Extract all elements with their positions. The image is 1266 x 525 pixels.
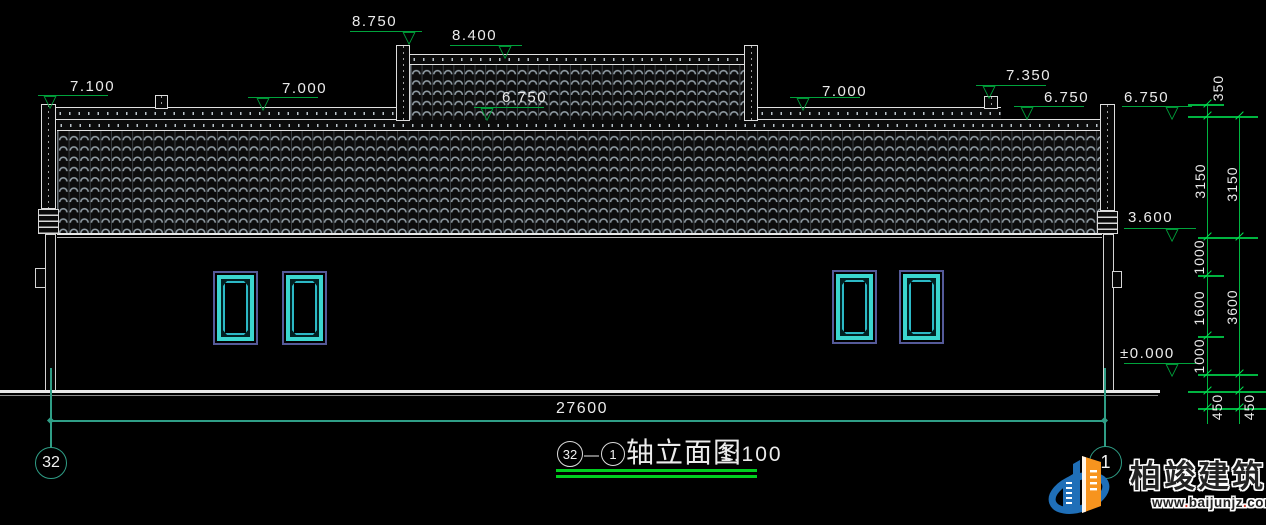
window-3 [832,270,877,344]
logo-url-text: www.baijunjz.com [1152,495,1266,510]
dim-end-marker [47,417,54,424]
left-column-bracket [35,268,46,288]
dim-value: 1000 [1190,326,1208,386]
eave-line [57,233,1102,235]
title-axis-circle-32: 32 [557,441,583,467]
left-corbel [38,209,59,234]
axis-extension-right [1104,368,1106,447]
dim-value: 450 [1208,377,1226,437]
dim-value: 3600 [1223,277,1241,337]
center-right-pillar [744,45,758,121]
center-left-pillar [396,45,410,121]
logo-icon [1046,444,1132,520]
logo-url-tld: com [1247,495,1266,510]
title-underline-bottom [556,475,757,478]
left-wing-coping-band [56,107,398,120]
level-triangle-icon: ▽ [495,45,515,59]
window-pane [223,281,248,335]
raised-roof-tiles [410,64,745,120]
window-frame [217,275,254,341]
elevation-drawing-canvas: 8.750 ▽ 8.400 ▽ 7.100 ▽ 7.000 ▽ 6.750 ▽ … [0,0,1266,525]
axis-extension-left [50,368,52,448]
level-triangle-icon: ▽ [40,95,60,109]
title-axis-circle-1: 1 [601,442,625,466]
eave-line-thin [57,237,1102,238]
level-triangle-icon: ▽ [399,31,419,45]
ground-line-thin [0,395,1158,396]
level-line [1124,228,1196,229]
axis-bubble-32: 32 [35,447,67,479]
right-corbel [1097,211,1118,234]
level-label: 3.600 [1128,210,1173,225]
drawing-scale: 1:100 [720,447,783,462]
window-4 [899,270,944,344]
left-parapet-wall [41,104,56,209]
right-column-bracket [1112,271,1122,288]
level-triangle-icon: ▽ [979,85,999,99]
overall-dim-line [51,420,1105,422]
level-label: 8.750 [352,14,397,29]
main-roof-tiles [57,130,1102,233]
dim-value: 3150 [1191,151,1209,211]
window-frame [836,274,873,340]
window-1 [213,271,258,345]
level-label: 6.750 [1124,90,1169,105]
window-pane [292,281,317,335]
level-label: 6.750 [502,90,547,105]
right-parapet-wall [1100,104,1115,211]
overall-width-value: 27600 [556,401,608,416]
logo-url-domain: baijunjz [1189,495,1243,510]
level-triangle-icon: ▽ [1162,106,1182,120]
window-frame [286,275,323,341]
main-roof-ridge-band [57,119,1102,131]
level-triangle-icon: ▽ [1162,363,1182,377]
level-label: 7.100 [70,79,115,94]
level-triangle-icon: ▽ [1017,106,1037,120]
left-wing-post [155,95,168,109]
level-label: 7.000 [282,81,327,96]
window-frame [903,274,940,340]
ground-line [0,390,1160,393]
level-triangle-icon: ▽ [477,107,497,121]
dim-end-marker [1101,417,1108,424]
logo-brand-text: 柏竣建筑 [1130,460,1266,494]
axis-bubble-32-label: 32 [42,454,60,472]
title-axis-1: 1 [609,447,616,462]
level-triangle-icon: ▽ [793,97,813,111]
level-label: 6.750 [1044,90,1089,105]
title-dash: — [584,448,601,463]
level-triangle-icon: ▽ [253,97,273,111]
dim-value: 350 [1209,58,1227,118]
level-label: 7.350 [1006,68,1051,83]
level-line [1124,363,1196,364]
dim-value: 3150 [1223,154,1241,214]
logo-url-www: www [1152,495,1185,510]
window-pane [909,280,934,334]
raised-roof-ridge-band [410,54,745,65]
window-pane [842,280,867,334]
level-label: ±0.000 [1120,346,1175,361]
level-triangle-icon: ▽ [1162,228,1182,242]
title-axis-32: 32 [563,447,577,462]
dim-value: 450 [1240,377,1258,437]
level-label: 8.400 [452,28,497,43]
title-underline-top [556,469,757,472]
window-2 [282,271,327,345]
